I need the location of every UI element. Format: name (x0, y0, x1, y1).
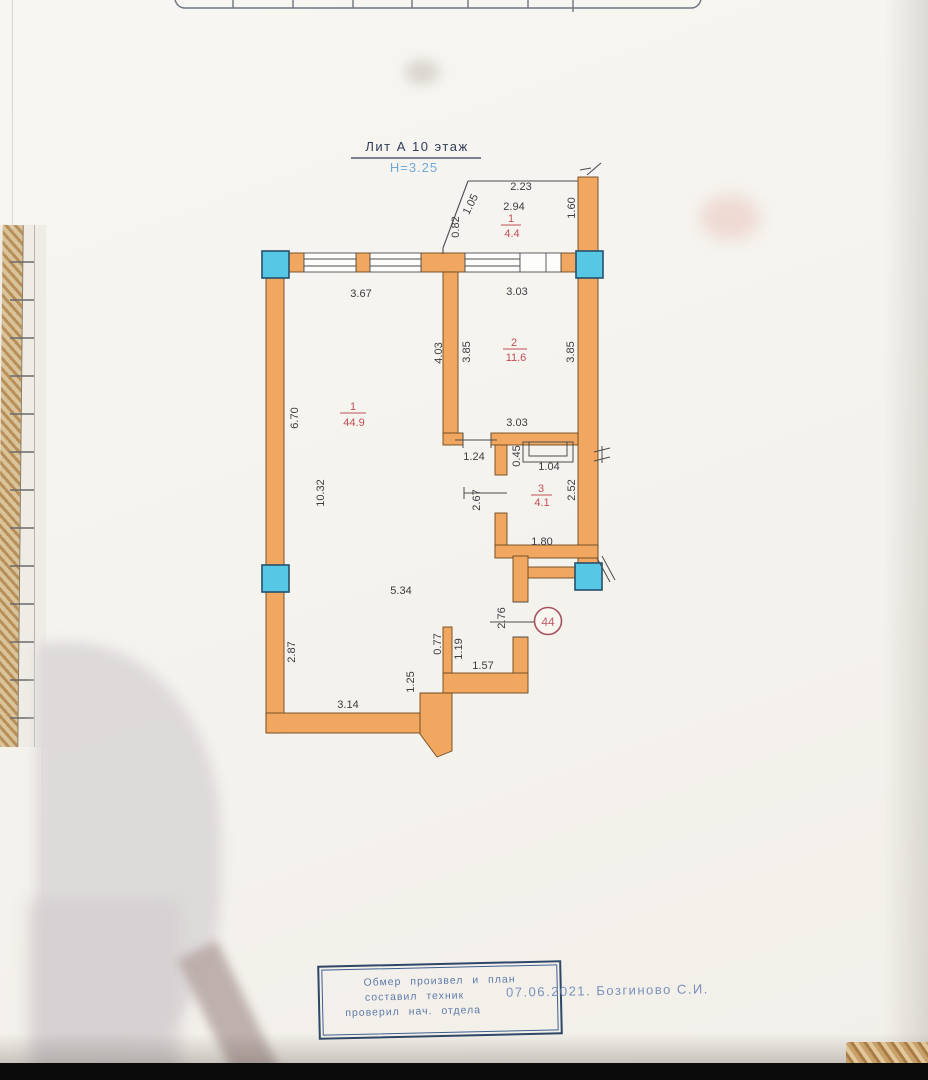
apartment-number: 44 (541, 615, 555, 629)
balcony-area: 4.4 (504, 228, 519, 240)
dim-2-94: 2.94 (503, 201, 524, 213)
stamp-inner-border: Обмер произвел и план составил техник пр… (321, 964, 558, 1035)
wall-entry-a (513, 556, 528, 602)
title-block: Лит А 10 этаж Н=3.25 (351, 139, 481, 175)
dim-2-87: 2.87 (286, 641, 298, 662)
wall-corridor-bottom (443, 673, 528, 693)
room2-area: 11.6 (506, 352, 527, 364)
wall-left (266, 253, 284, 733)
dim-1-19: 1.19 (453, 638, 465, 659)
wall-top-mullion (356, 253, 370, 272)
dim-2-67: 2.67 (471, 489, 483, 510)
dim-1-60: 1.60 (566, 197, 578, 218)
column-top-left (262, 251, 289, 278)
dim-1-57: 1.57 (472, 660, 493, 672)
bath-number: 3 (538, 483, 544, 495)
dim-1-80: 1.80 (531, 536, 552, 548)
dim-1-25: 1.25 (405, 671, 417, 692)
wood-table-strip (846, 1042, 928, 1063)
column-entry (575, 563, 602, 590)
dim-0-82: 0.82 (450, 216, 462, 237)
entry-door-swing2 (602, 556, 615, 580)
dim-5-34: 5.34 (390, 585, 411, 597)
wall-bath-left-a (495, 445, 507, 475)
right-edge-shade (884, 0, 928, 1080)
wall-room2-bottom-b (491, 433, 578, 445)
surveyor-stamp: Обмер произвел и план составил техник пр… (317, 960, 563, 1040)
wall-stub (443, 627, 452, 673)
dim-3-03-mid: 3.03 (506, 417, 527, 429)
dim-3-85-left: 3.85 (461, 341, 473, 362)
bottom-edge-shade (0, 1033, 928, 1063)
bath-area: 4.1 (534, 497, 549, 509)
balcony-door-opening (520, 253, 561, 272)
dim-4-03: 4.03 (433, 342, 445, 363)
dim-3-14: 3.14 (337, 699, 358, 711)
dim-3-03-top: 3.03 (506, 286, 527, 298)
living-area: 44.9 (343, 417, 364, 429)
wall-interior-room2 (443, 272, 458, 435)
column-top-right (576, 251, 603, 278)
black-letterbox-bar (0, 1063, 928, 1080)
dim-2-52: 2.52 (566, 479, 578, 500)
wall-room2-bottom-a (443, 433, 463, 445)
dim-3-67: 3.67 (350, 288, 371, 300)
living-number: 1 (350, 401, 356, 413)
wall-top-pier (421, 253, 465, 272)
floor-plan-drawing: Лит А 10 этаж Н=3.25 (0, 0, 928, 1080)
dim-2-23: 2.23 (510, 181, 531, 193)
apartment-number-badge: 44 (535, 608, 562, 635)
dim-6-70: 6.70 (289, 407, 301, 428)
dim-0-45: 0.45 (511, 445, 523, 466)
dim-0-77: 0.77 (432, 633, 444, 654)
plan-title: Лит А 10 этаж (365, 139, 468, 154)
dim-3-85-right: 3.85 (565, 341, 577, 362)
column-mid-left (262, 565, 289, 592)
dim-10-32: 10.32 (315, 479, 327, 507)
balcony-number: 1 (508, 213, 514, 225)
window-3 (465, 253, 520, 272)
ceiling-height-note: Н=3.25 (390, 160, 438, 175)
wall-protrusion (420, 693, 452, 757)
dim-1-24: 1.24 (463, 451, 484, 463)
wall-right (578, 177, 598, 568)
dim-1-05: 1.05 (461, 192, 481, 217)
wall-bottom (266, 713, 432, 733)
dim-2-76: 2.76 (496, 607, 508, 628)
extension-tick (587, 163, 601, 175)
window-2 (370, 253, 421, 272)
table-grid-top (175, 0, 701, 12)
photo-of-floor-plan-sheet: Лит А 10 этаж Н=3.25 (0, 0, 928, 1080)
wall-entry-b (513, 637, 528, 675)
extension-tick2 (580, 168, 591, 170)
room2-number: 2 (511, 337, 517, 349)
dim-1-04: 1.04 (538, 461, 559, 473)
window-1 (304, 253, 356, 272)
